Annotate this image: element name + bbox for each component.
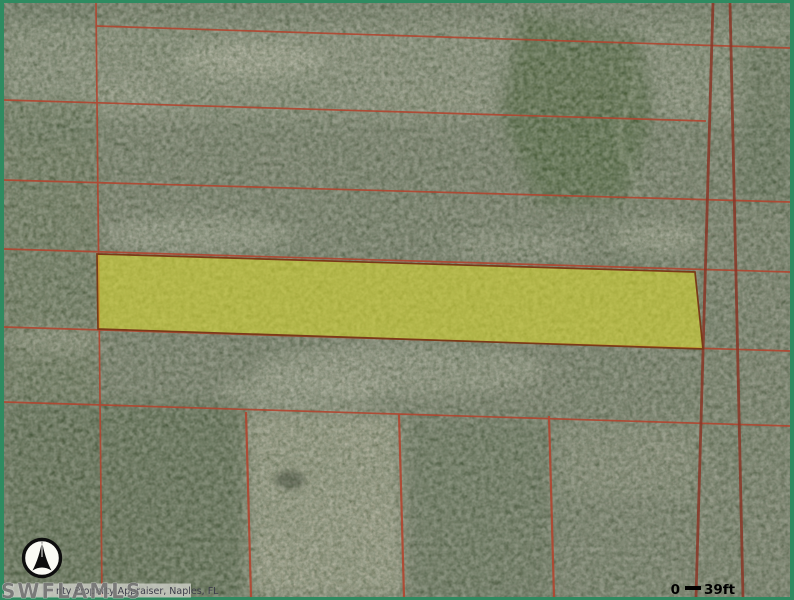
north-arrow-compass [24,540,61,577]
scale-bar-segment [685,586,701,590]
watermark-text: SWFLAMLS [1,579,142,600]
map-canvas: nty Property Appraiser, Naples, FL SWFLA… [0,0,794,600]
mls-aerial-map-image: nty Property Appraiser, Naples, FL SWFLA… [0,0,794,600]
scale-end-label: 39ft [704,582,736,598]
scale-start-label: 0 [671,582,680,598]
